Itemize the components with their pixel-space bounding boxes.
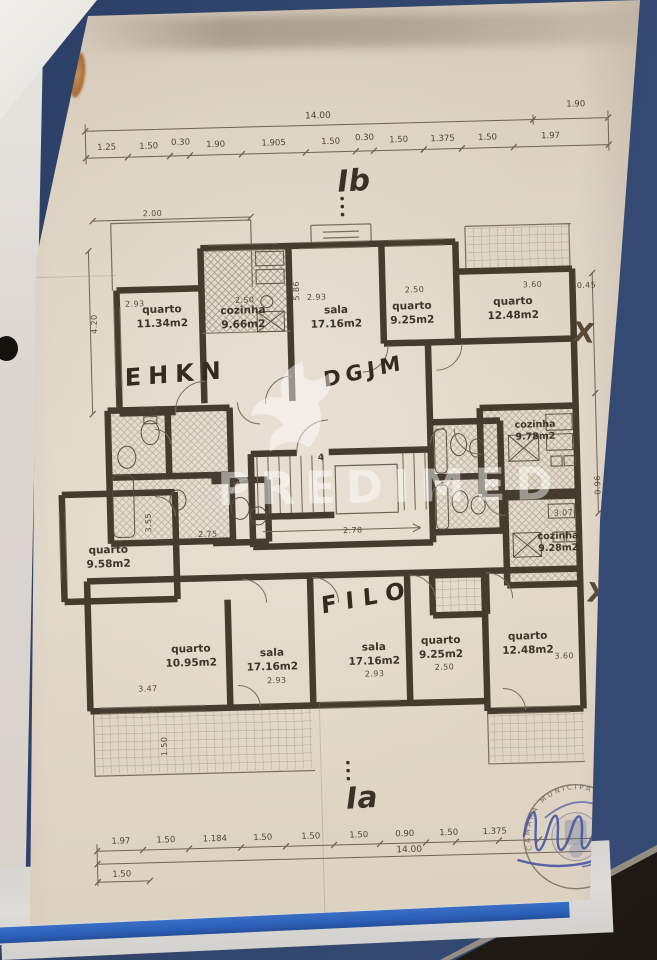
dim-bottom-extra: 1.50	[112, 869, 131, 879]
dim-small: 2.50	[235, 295, 255, 305]
floor-plan-sheet: CÂMARA MUNICIPAL DE quarto11.34m2 cozinh…	[0, 0, 657, 960]
dim-seg: 1.50	[301, 831, 320, 841]
dim-small: 2.93	[267, 676, 287, 686]
dim-small: 0.45	[142, 706, 162, 716]
rust-stain	[60, 96, 68, 106]
dim-small: 2.93	[307, 293, 327, 303]
dim-overall-bottom: 14.00	[396, 845, 422, 856]
section-label-top: Ib	[336, 163, 371, 200]
dim-seg: 1.97	[111, 836, 130, 846]
watermark-bird-logo	[238, 350, 358, 460]
dim-seg: 1.905	[261, 138, 286, 149]
dim-small: 2.00	[143, 209, 163, 219]
room-label: sala17.16m2	[246, 646, 298, 675]
dim-small: 2.50	[435, 662, 455, 672]
section-label-bottom: Ia	[345, 780, 378, 817]
dim-small: 3.60	[523, 280, 543, 290]
dim-seg: 1.90	[206, 140, 225, 150]
dim-top-right: 1.90	[566, 99, 585, 109]
dim-seg: 1.184	[203, 834, 228, 845]
dim-seg: 0.30	[171, 138, 190, 148]
dim-small: 2.75	[198, 529, 218, 539]
dim-small: 0.45	[577, 280, 597, 290]
room-label: cozinha9.28m2	[537, 530, 579, 556]
x-mark: X	[572, 317, 596, 350]
dim-seg: 1.375	[482, 826, 507, 837]
room-label: sala17.16m2	[348, 641, 400, 670]
dim-small: 2.78	[343, 526, 363, 536]
dim-seg: 1.25	[97, 142, 116, 152]
room-label: sala17.16m2	[310, 303, 362, 332]
room-label: cozinha9.78m2	[515, 419, 557, 445]
dim-small: 2.50	[405, 285, 425, 295]
dim-seg: 1.50	[389, 135, 408, 145]
dim-seg: 1.375	[430, 134, 455, 145]
dim-seg: 1.50	[478, 133, 497, 143]
room-label: quarto12.48m2	[487, 295, 539, 324]
dim-small: 0.15	[140, 405, 160, 415]
dim-seg: 1.50	[253, 833, 272, 843]
dim-seg: 1.50	[321, 137, 340, 147]
watermark-text: PREDIMED	[140, 456, 641, 518]
dim-seg: 1.50	[439, 828, 458, 838]
dim-overall-top: 14.00	[305, 111, 331, 122]
dim-seg: 1.50	[139, 141, 158, 151]
dim-small: 3.47	[138, 684, 158, 694]
dim-small: 2.93	[365, 669, 385, 679]
dim-seg: 1.50	[156, 835, 175, 845]
room-label: cozinha9.66m2	[220, 304, 266, 332]
x-mark: X	[585, 577, 609, 610]
dim-seg: 1.50	[349, 830, 368, 840]
photo-of-floor-plan: andares	[0, 0, 657, 960]
dim-small: 4.20	[90, 314, 100, 334]
dim-seg: 0.90	[395, 829, 414, 839]
dim-seg: 1.97	[541, 131, 560, 141]
room-label: quarto9.58m2	[86, 544, 131, 572]
dim-small: 2.93	[125, 299, 145, 309]
dim-seg: 0.30	[355, 133, 374, 143]
dim-small: 5.86	[292, 281, 302, 301]
dim-small: 3.60	[554, 651, 574, 661]
dim-small: 1.50	[160, 737, 170, 757]
room-label: quarto9.25m2	[390, 300, 435, 328]
room-label: quarto10.95m2	[165, 642, 217, 671]
room-label: quarto9.25m2	[418, 634, 463, 662]
room-label: quarto12.48m2	[502, 630, 554, 659]
